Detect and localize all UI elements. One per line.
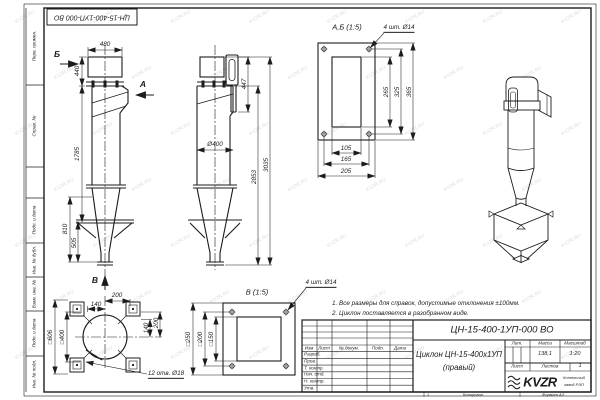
dim-side-h1: 2853 [252, 170, 258, 184]
dim-ab-165: 165 [341, 157, 352, 163]
tb-sheets-label: Листов [542, 365, 559, 370]
detail-ab-lines [318, 33, 415, 178]
tb-row-tkontr: Т. контр. [304, 366, 324, 371]
dim-bottom-140r: 140 [144, 323, 150, 334]
tb-mass-value: 138,1 [538, 352, 552, 358]
dim-v-inner: □150 [209, 332, 215, 346]
dim-front-cone-h: 810 [63, 224, 69, 235]
section-label-v: В [92, 276, 98, 285]
dim-ab-325: 325 [395, 87, 401, 98]
designation-stamp: ЦН-15-400-1УП-000 ВО [54, 14, 130, 21]
company-logo-text: KVZR [523, 375, 556, 388]
dim-front-cone-l: 505 [72, 238, 78, 249]
footer-zone: 1 [427, 393, 429, 397]
dim-bottom-sq-inner: □400 [60, 330, 66, 344]
tb-scale-label: Масштаб [564, 341, 585, 346]
margin-label-inv-podl: Инв. № подл. [33, 360, 38, 389]
dim-bottom-sq-outer: □606 [48, 330, 54, 344]
dim-v-mid: □200 [198, 332, 204, 346]
drawing-sheet: KVZR.RUKVZR.RUKVZR.RUKVZR.RUKVZR.RUKVZR.… [0, 0, 600, 400]
margin-label-podp1: Подп. и дата [33, 206, 38, 235]
margin-label-podp2: Подп. и дата [33, 319, 38, 348]
tb-sheets-value: 1 [578, 364, 581, 370]
detail-ab-title: А,Б (1:5) [332, 23, 361, 31]
drawing-linework [0, 0, 600, 400]
dim-ab-205: 205 [341, 169, 352, 175]
tb-sheet-label: Лист [511, 365, 523, 370]
detail-v-callout: 4 шт. Ø14 [305, 280, 336, 288]
dim-front-inlet: 440 [75, 66, 81, 77]
margin-label-inv-dubl: Инв. № дубл. [33, 246, 38, 274]
note-line-1: 1. Все размеры для справок, допустимые о… [332, 301, 520, 307]
margin-label-sprav: Справ. № [33, 116, 38, 137]
logo-subtext-2: завод РЭП [564, 383, 584, 387]
margin-label-vzam: Взам. инв. № [33, 280, 38, 308]
dim-side-top: 447 [242, 79, 248, 90]
logo-subtext-1: Котельный [563, 376, 585, 380]
tb-mass-label: Масса [538, 341, 552, 346]
dim-ab-265: 265 [384, 87, 390, 98]
tb-row-utv: Утв. [304, 387, 314, 392]
dim-v-outer: □250 [186, 332, 192, 346]
detail-ab-callout: 4 шт. Ø14 [383, 25, 414, 33]
dim-front-body: 1785 [75, 147, 81, 161]
tb-hdr-podp: Подп. [372, 346, 384, 351]
note-line-2: 2. Циклон поставляется в разобранном вид… [332, 310, 469, 316]
title-block-name-1: Циклон ЦН-15-400х1УП [416, 351, 502, 359]
tb-row-prov: Пров. [304, 360, 316, 365]
detail-v-title: В (1:5) [246, 288, 269, 296]
tb-hdr-data: Дата [394, 346, 406, 351]
title-block-name-2: (правый) [443, 364, 475, 372]
tb-row-nkontr: Н. контр. [304, 380, 325, 385]
footer-copied: Копировал [463, 393, 483, 397]
tb-hdr-izm: Изм [305, 346, 314, 351]
dim-ab-105: 105 [341, 146, 352, 152]
tb-row-razrab: Разраб. [304, 353, 321, 358]
tb-hdr-list: Лист [318, 346, 330, 351]
footer-format: Формат А3 [542, 393, 564, 397]
tb-lit-label: Лит. [512, 341, 523, 346]
dim-side-dia: Ø400 [207, 142, 222, 148]
tb-row-nachotd: Нач. отд. [304, 373, 325, 378]
dim-bottom-200t: 200 [112, 293, 123, 299]
section-label-b: Б [54, 50, 60, 59]
tb-scale-value: 1:20 [570, 352, 581, 358]
bottom-view-callout: 12 отв. Ø18 [148, 371, 184, 379]
isometric-view-lines [489, 77, 553, 263]
dim-bottom-140t: 140 [91, 302, 102, 308]
dim-front-width: 480 [100, 42, 111, 48]
tb-hdr-doc: № докум. [339, 346, 359, 351]
section-label-a: А [140, 80, 146, 89]
margin-label-perv: Перв. примен. [33, 31, 38, 62]
dim-side-h2: 3035 [264, 158, 270, 172]
logo-spring-icon [508, 376, 520, 389]
dim-bottom-200r: 200 [154, 318, 160, 329]
dim-ab-365: 365 [407, 87, 413, 98]
title-block-designation: ЦН-15-400-1УП-000 ВО [450, 325, 553, 335]
bottom-view-lines [53, 296, 162, 374]
side-view-lines [188, 45, 272, 270]
